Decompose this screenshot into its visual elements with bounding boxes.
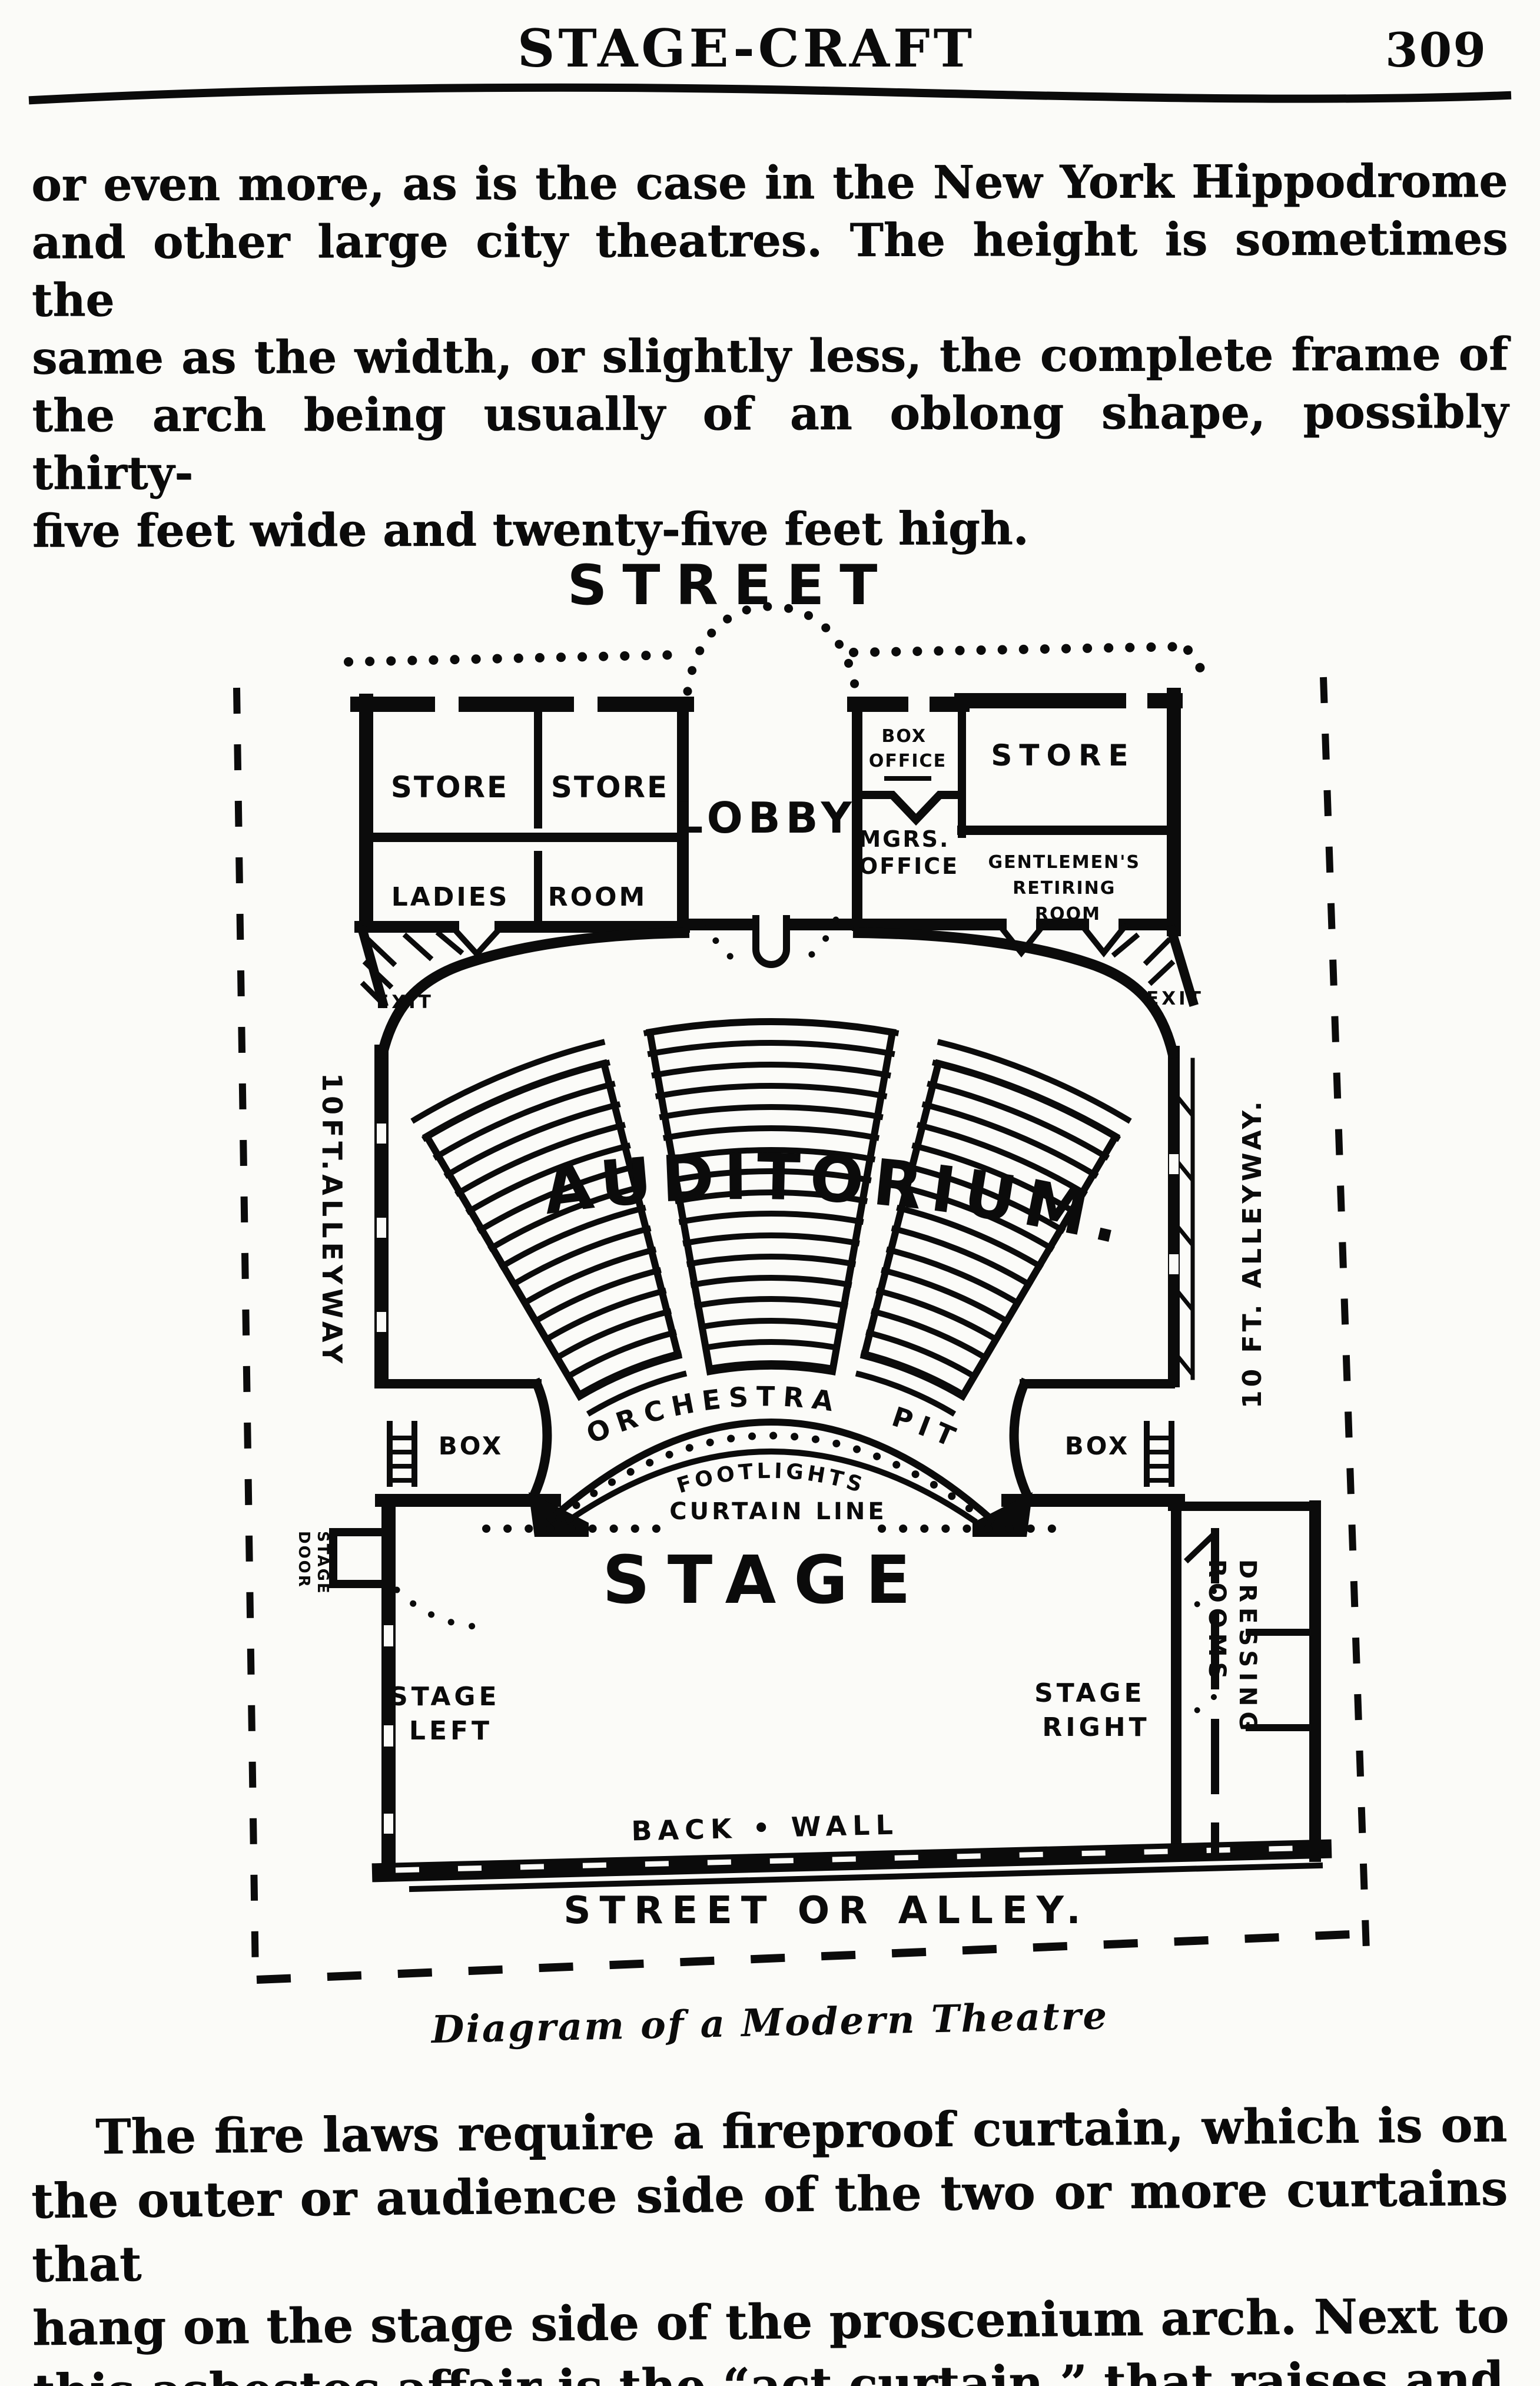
alleyway-right-label: 10 FT. ALLEYWAY. <box>1237 1098 1267 1409</box>
exit-left-label: EXIT <box>376 992 434 1013</box>
footlights-label: FOOTLIGHTS <box>674 1459 868 1499</box>
box-office-line2: OFFICE <box>869 751 947 771</box>
stage-left-label: STAGE LEFT <box>389 1682 513 1746</box>
street-or-alley-label: STREET OR ALLEY. <box>563 1889 1089 1933</box>
store-left-a-label: STORE <box>391 770 509 804</box>
street-label: STREET <box>567 554 893 618</box>
gents-line3: ROOM <box>1035 904 1101 924</box>
stage-left-line1: STAGE <box>389 1682 500 1712</box>
curtain-line-label: CURTAIN LINE <box>669 1498 887 1525</box>
ladies-room-label: LADIES ROOM <box>391 882 648 912</box>
managers-office-label: MGRS. OFFICE <box>858 826 959 879</box>
back-wall-label: BACK • WALL <box>631 1808 900 1847</box>
managers-office-line1: MGRS. <box>858 826 950 852</box>
store-right-label: STORE <box>991 738 1135 773</box>
dressing-rooms-line1: DRESSING <box>1234 1559 1261 1736</box>
stage-right-label: STAGE RIGHT <box>1034 1678 1158 1742</box>
stage-left-line2: LEFT <box>409 1716 493 1746</box>
stage-right-line1: STAGE <box>1034 1678 1146 1708</box>
stage-label: STAGE <box>602 1542 928 1619</box>
stage-door-line2: DOOR <box>295 1531 313 1589</box>
managers-office-line2: OFFICE <box>859 853 959 879</box>
box-left-label: BOX <box>439 1431 504 1460</box>
exit-right-label: EXIT <box>1146 988 1204 1009</box>
paragraph-line: the outer or audience side of the two or… <box>31 2157 1509 2297</box>
lobby-label: LOBBY <box>676 793 857 843</box>
property-lines <box>237 677 1367 1980</box>
gents-line2: RETIRING <box>1013 878 1116 899</box>
box-office-line1: BOX <box>882 726 927 747</box>
store-left-b-label: STORE <box>551 770 669 804</box>
alleyway-left-label: 10FT.ALLEYWAY <box>316 1073 348 1367</box>
stage-right-line2: RIGHT <box>1042 1712 1150 1742</box>
gentlemens-retiring-room-label: GENTLEMEN'S RETIRING ROOM <box>988 852 1148 924</box>
gents-line1: GENTLEMEN'S <box>988 852 1141 873</box>
closing-paragraph: The fire laws require a fireproof curtai… <box>31 2093 1510 2386</box>
dressing-rooms-line2: ROOMS <box>1203 1559 1230 1684</box>
header-rule <box>33 88 1507 100</box>
street-line <box>349 607 1203 691</box>
box-office-label: BOX OFFICE <box>869 726 947 771</box>
stage-door-line1: STAGE <box>314 1531 331 1595</box>
book-page: STAGE-CRAFT 309 or even more, as is the … <box>0 0 1540 2386</box>
stage-door-label: STAGE DOOR <box>295 1531 331 1602</box>
box-right-label: BOX <box>1065 1431 1130 1460</box>
